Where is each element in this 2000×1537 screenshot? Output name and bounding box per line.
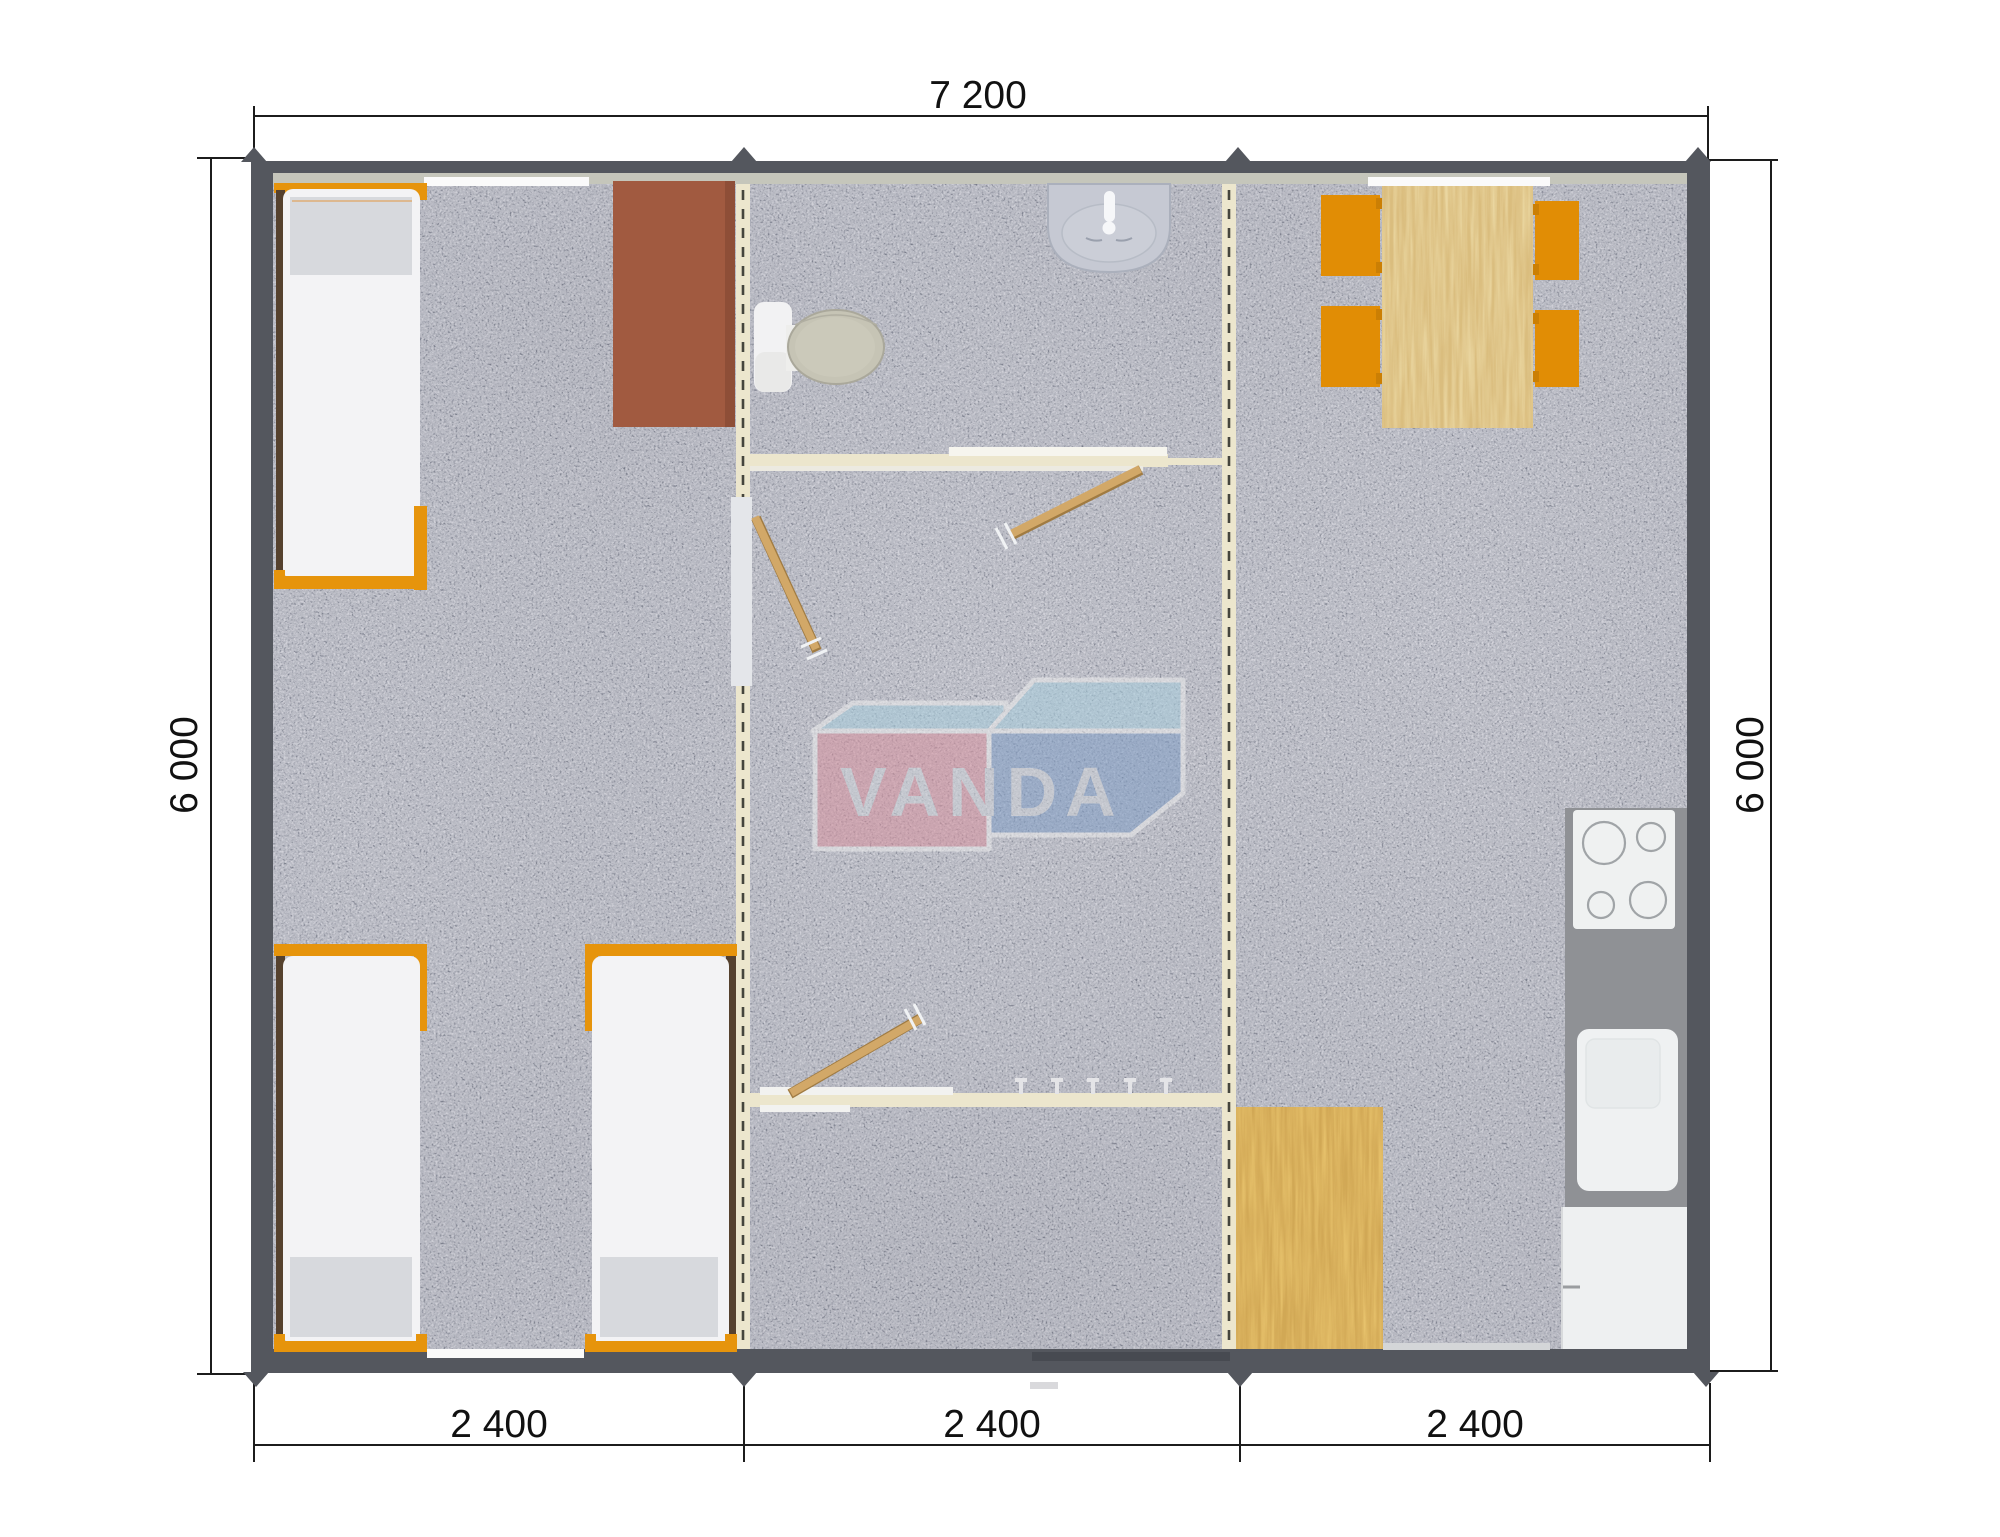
svg-text:2 400: 2 400 [943, 1403, 1041, 1446]
svg-text:7 200: 7 200 [929, 74, 1027, 117]
svg-text:VANDA: VANDA [840, 753, 1124, 831]
svg-text:2 400: 2 400 [1426, 1403, 1524, 1446]
svg-text:6 000: 6 000 [1729, 716, 1772, 814]
svg-text:2 400: 2 400 [450, 1403, 548, 1446]
svg-text:6 000: 6 000 [163, 716, 206, 814]
